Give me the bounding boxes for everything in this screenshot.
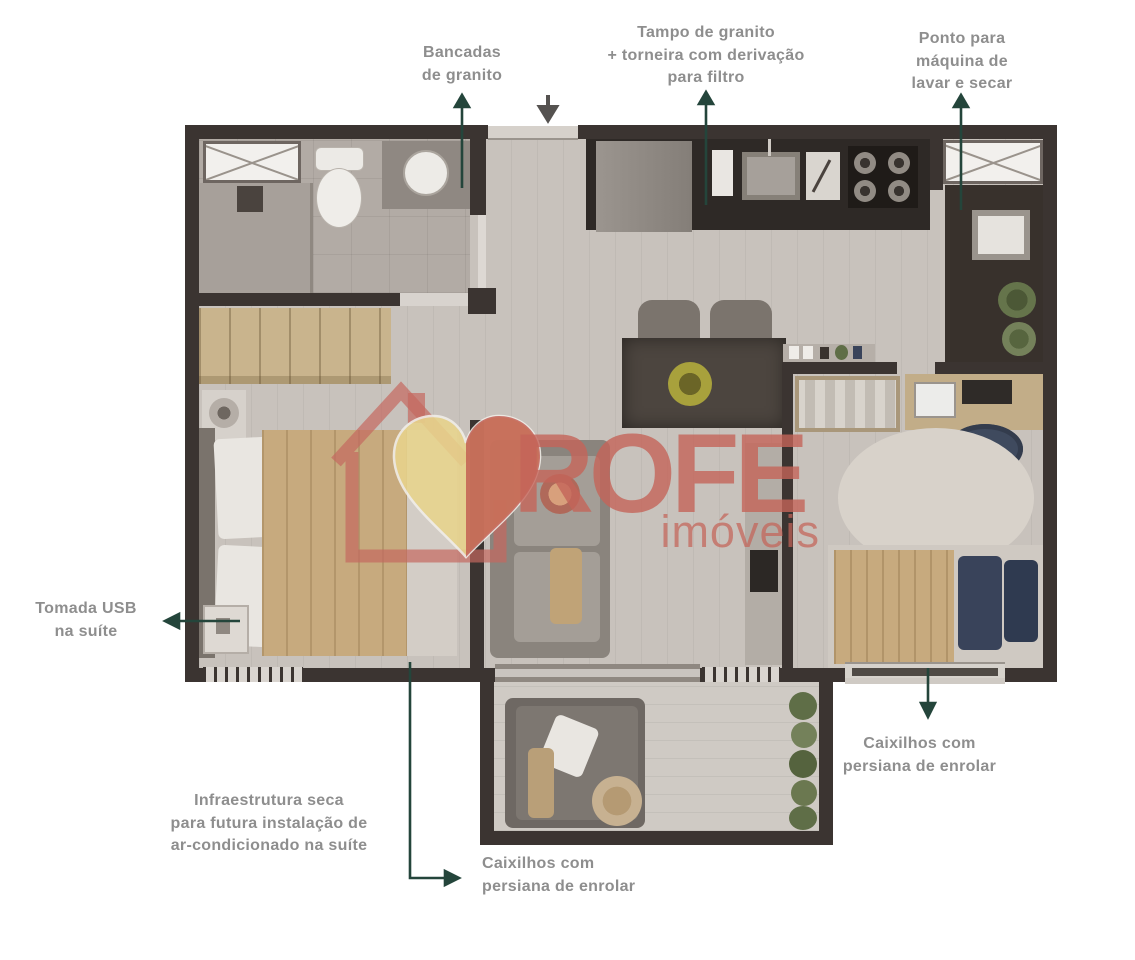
shelf-item — [789, 346, 799, 359]
arrow-up-icon — [455, 95, 469, 107]
leader-caixilhos-varanda — [410, 662, 448, 878]
bathroom-door-opening — [400, 293, 470, 306]
bathroom-window-icon — [203, 141, 301, 183]
lounge-pillow-tan — [528, 748, 554, 818]
wall-balcony-bottom — [480, 831, 833, 845]
kitchen-sink — [742, 152, 800, 200]
wall-bathroom-right — [470, 139, 486, 215]
bed-pillow-navy — [958, 556, 1002, 650]
arrow-right-icon — [445, 871, 459, 885]
shower-drain — [237, 186, 263, 212]
pouf — [592, 776, 642, 826]
monitor — [962, 380, 1012, 404]
wall-bathroom-bottom — [185, 293, 400, 306]
balcony-window-ticks — [702, 667, 780, 682]
wall-door-post — [468, 288, 496, 314]
suite-wardrobe — [199, 308, 391, 384]
shelf-item-plant — [835, 345, 848, 360]
entry-door — [488, 126, 578, 140]
arrow-up-icon — [699, 92, 713, 104]
shelf-item — [820, 347, 829, 359]
label-infraestrutura-seca: Infraestrutura seca para futura instalaç… — [143, 790, 395, 858]
bedroom2-bed-blanket — [834, 550, 954, 664]
suite-bed-blanket — [262, 430, 407, 656]
faucet-icon — [768, 138, 771, 156]
floorplan-canvas: ROFE imóveis Bancadas de granito Tampo d… — [0, 0, 1135, 960]
wall-right — [1043, 125, 1057, 682]
table-lamp — [209, 398, 239, 428]
arrow-up-icon — [954, 95, 968, 107]
wall-bathroom-glass — [478, 215, 486, 288]
label-caixilhos-quarto: Caixilhos com persiana de enrolar — [822, 733, 1017, 778]
sofa-throw-blanket — [550, 548, 582, 624]
wall-bedroom2-top-a — [782, 362, 897, 374]
stove-burner — [888, 180, 910, 202]
stove-burner — [888, 152, 910, 174]
label-ponto-maquina: Ponto para máquina de lavar e secar — [892, 28, 1032, 96]
plant — [791, 780, 817, 806]
wall-top-right — [578, 125, 1057, 139]
plant — [1002, 322, 1036, 356]
stove-burner — [854, 180, 876, 202]
laundry-tank — [972, 210, 1030, 260]
wall-left — [185, 125, 199, 682]
wall-suite-right — [470, 420, 484, 668]
laptop — [914, 382, 956, 418]
kitchen-board — [712, 150, 733, 196]
wall-top-left — [185, 125, 488, 139]
refrigerator — [596, 141, 692, 232]
shelf-item — [803, 346, 813, 359]
bedroom2-wardrobe — [795, 376, 900, 432]
entry-arrow-icon — [540, 107, 556, 120]
suite-window-band — [203, 667, 303, 682]
bedroom2-window-blind — [852, 668, 998, 676]
stove-burner — [854, 152, 876, 174]
laundry-window-icon — [943, 140, 1043, 184]
label-tomada-usb: Tomada USB na suíte — [10, 598, 162, 643]
plant — [789, 750, 817, 778]
bathroom-sink — [403, 150, 449, 196]
plant — [789, 806, 817, 830]
toilet-bowl — [316, 168, 362, 228]
usb-outlet — [216, 618, 230, 634]
table-centerpiece — [668, 362, 712, 406]
label-tampo-granito: Tampo de granito + torneira com derivaçã… — [586, 22, 826, 90]
label-bancadas-granito: Bancadas de granito — [392, 42, 532, 87]
watermark-subtitle-text: imóveis — [648, 506, 820, 558]
balcony-sliding-door — [495, 664, 700, 682]
shelf-item — [853, 346, 862, 359]
label-caixilhos-varanda: Caixilhos com persiana de enrolar — [482, 853, 692, 898]
plant — [789, 692, 817, 720]
wall-kitchen-stub — [930, 139, 943, 190]
plant — [998, 282, 1036, 318]
wall-balcony-left — [480, 682, 494, 845]
bed-pillow-navy — [1004, 560, 1038, 642]
arrow-left-icon — [165, 614, 179, 628]
wall-bedroom2-top-b — [935, 362, 1043, 374]
plant — [791, 722, 817, 748]
arrow-down-icon — [921, 703, 935, 717]
